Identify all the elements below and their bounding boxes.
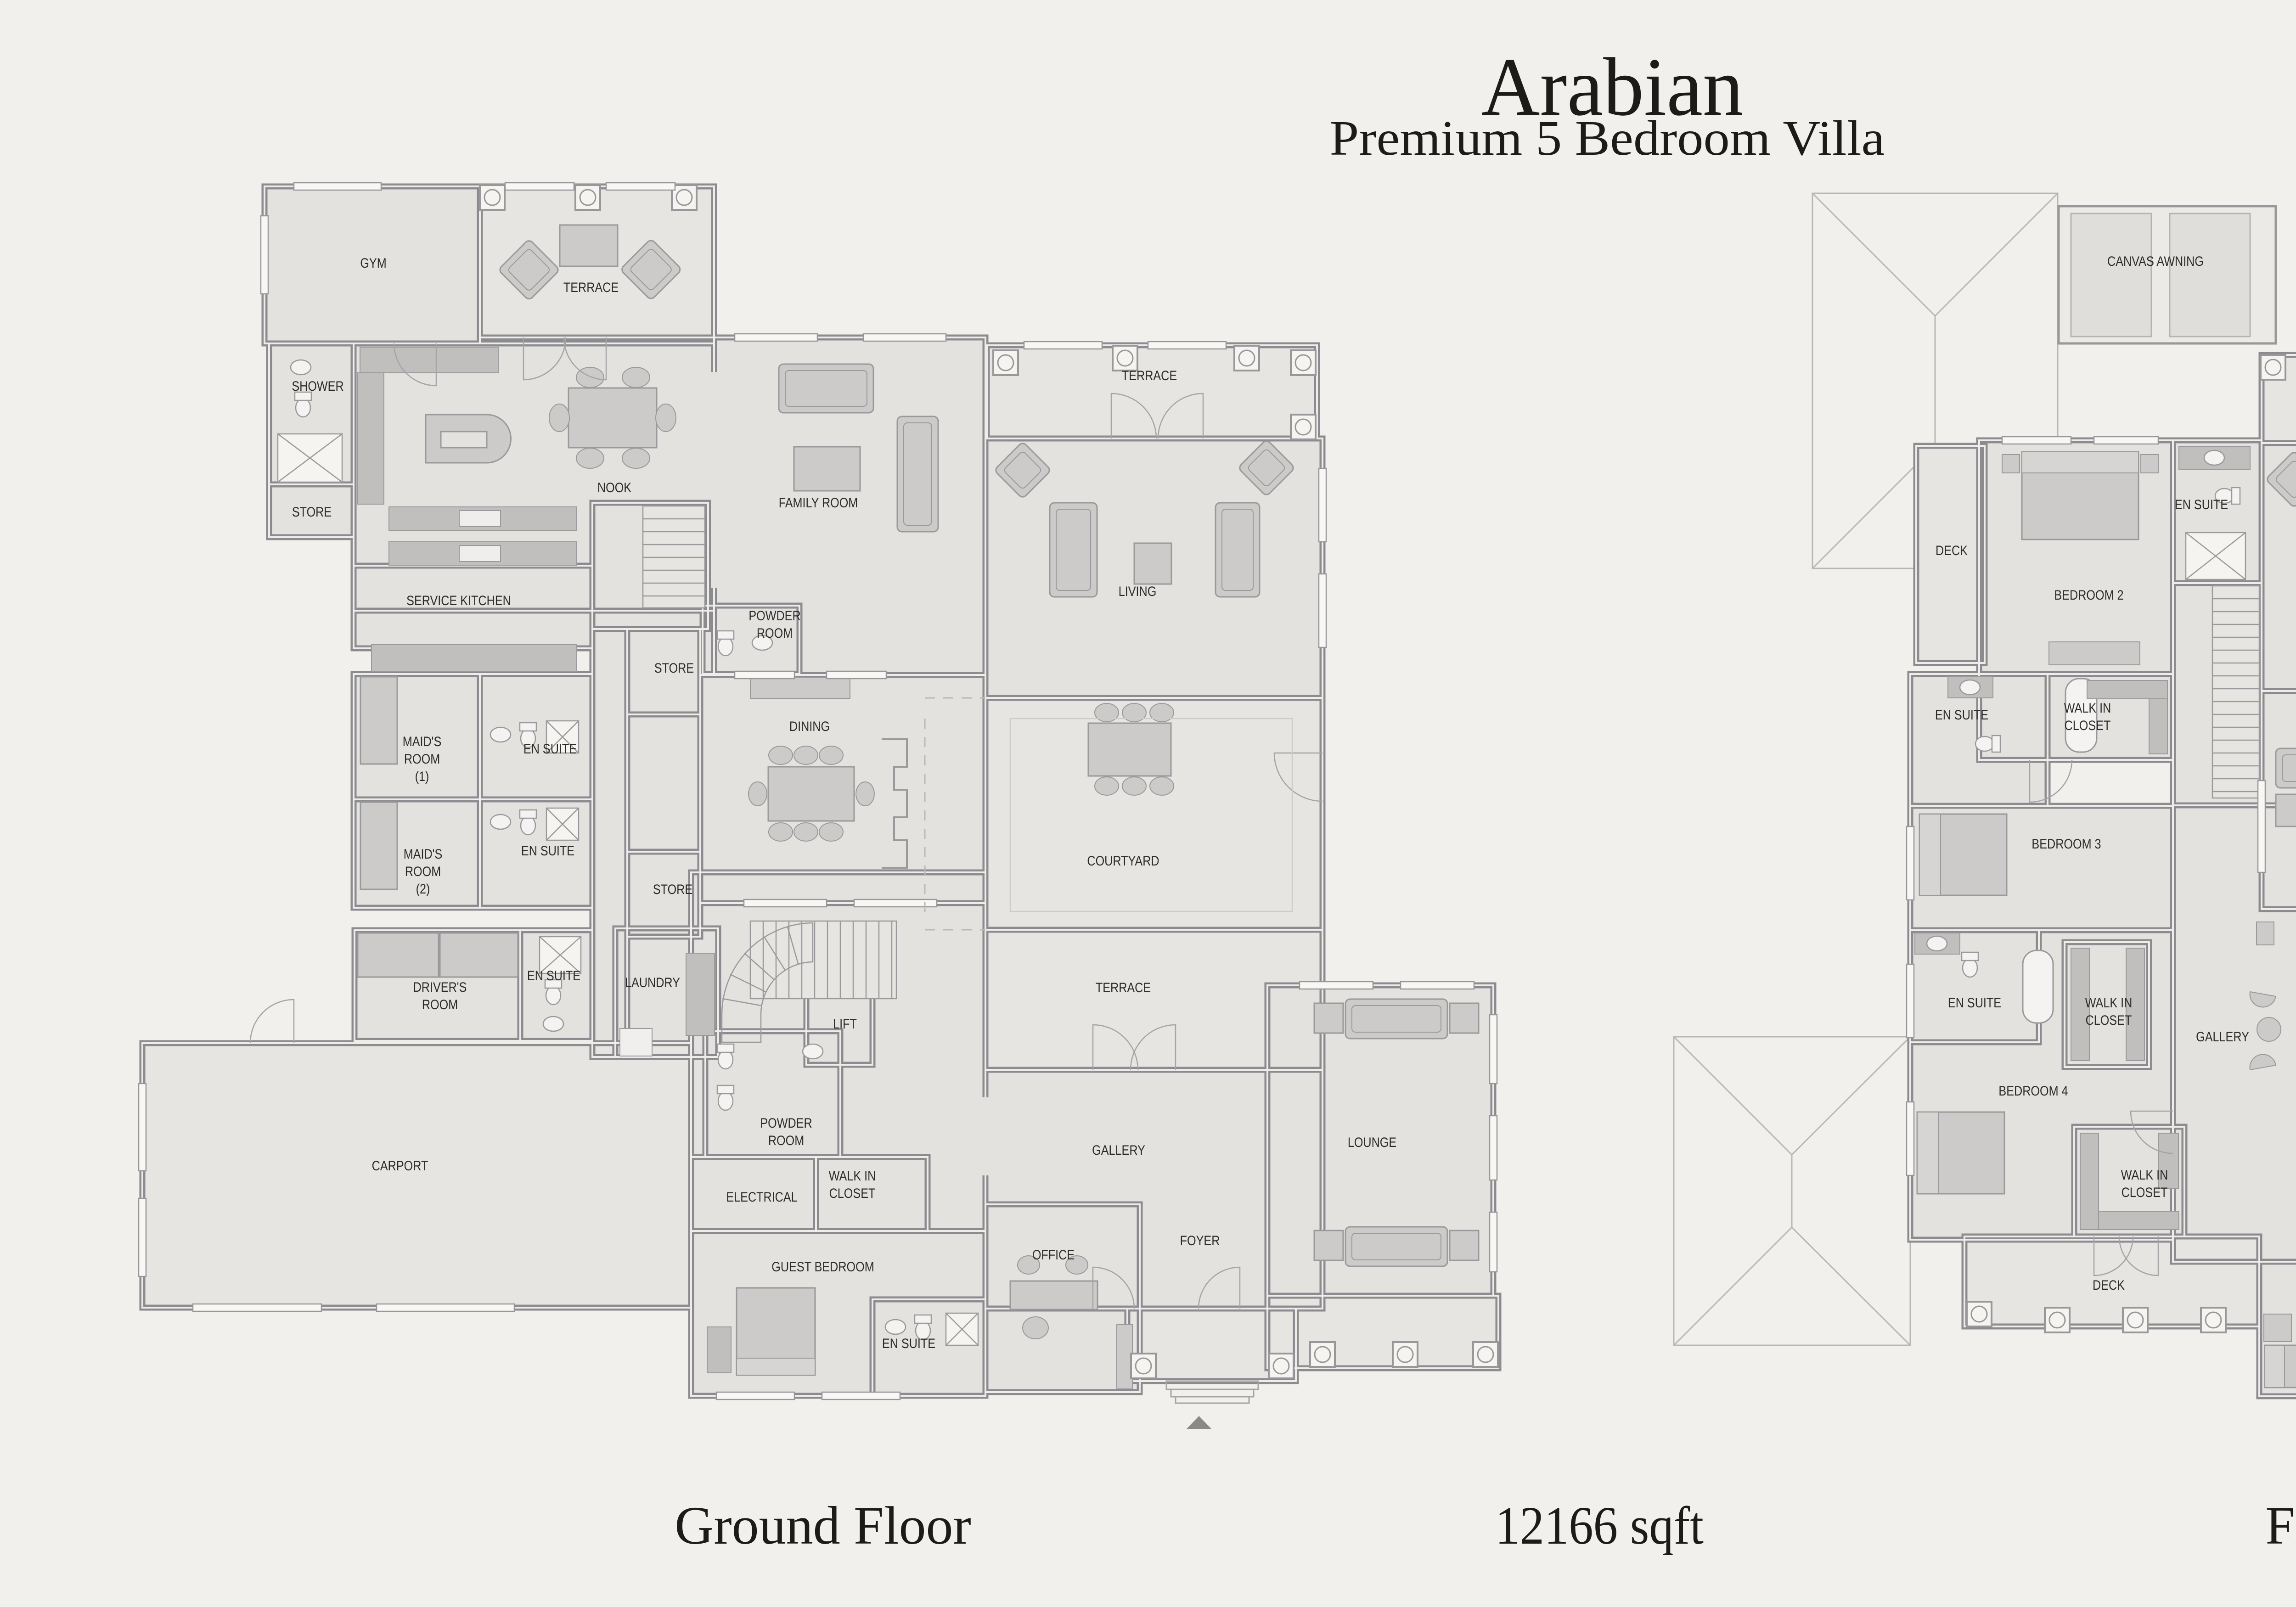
- svg-text:COURTYARD: COURTYARD: [1087, 853, 1159, 869]
- svg-text:ROOM: ROOM: [405, 864, 441, 879]
- svg-text:GALLERY: GALLERY: [2196, 1029, 2249, 1045]
- svg-text:MAID'S: MAID'S: [404, 846, 443, 862]
- svg-text:FOYER: FOYER: [1180, 1233, 1220, 1248]
- svg-text:EN SUITE: EN SUITE: [882, 1336, 935, 1351]
- svg-text:DECK: DECK: [2093, 1277, 2125, 1293]
- svg-text:12166 sqft: 12166 sqft: [1495, 1496, 1704, 1556]
- svg-text:Ground Floor: Ground Floor: [675, 1495, 971, 1556]
- svg-text:EN SUITE: EN SUITE: [521, 843, 574, 859]
- svg-text:TERRACE: TERRACE: [1096, 980, 1151, 995]
- svg-text:MAID'S: MAID'S: [403, 734, 442, 749]
- svg-text:WALK IN: WALK IN: [829, 1168, 876, 1184]
- svg-text:EN SUITE: EN SUITE: [1935, 707, 1988, 723]
- svg-text:EN SUITE: EN SUITE: [2175, 497, 2228, 512]
- svg-text:OFFICE: OFFICE: [1032, 1247, 1075, 1263]
- svg-text:FAMILY ROOM: FAMILY ROOM: [779, 495, 858, 511]
- svg-text:BEDROOM 2: BEDROOM 2: [2054, 587, 2123, 603]
- svg-text:EN SUITE: EN SUITE: [523, 741, 577, 757]
- svg-text:LOUNGE: LOUNGE: [1348, 1135, 1396, 1150]
- svg-text:CLOSET: CLOSET: [2065, 718, 2111, 733]
- svg-text:LAUNDRY: LAUNDRY: [625, 975, 680, 990]
- svg-text:CLOSET: CLOSET: [2122, 1185, 2168, 1200]
- svg-text:POWDER: POWDER: [760, 1115, 812, 1131]
- svg-text:GALLERY: GALLERY: [1092, 1142, 1145, 1158]
- svg-text:POWDER: POWDER: [748, 608, 800, 624]
- svg-text:WALK IN: WALK IN: [2121, 1167, 2168, 1183]
- svg-text:First Floor: First Floor: [2265, 1496, 2296, 1556]
- svg-text:TERRACE: TERRACE: [563, 280, 619, 295]
- svg-text:BEDROOM 3: BEDROOM 3: [2032, 836, 2101, 852]
- svg-text:WALK IN: WALK IN: [2064, 700, 2111, 716]
- svg-text:STORE: STORE: [653, 882, 692, 897]
- svg-text:CLOSET: CLOSET: [829, 1186, 876, 1201]
- svg-text:DRIVER'S: DRIVER'S: [413, 979, 467, 995]
- svg-text:EN SUITE: EN SUITE: [527, 968, 580, 983]
- svg-text:CARPORT: CARPORT: [372, 1158, 428, 1174]
- svg-text:ROOM: ROOM: [768, 1133, 804, 1148]
- svg-text:DINING: DINING: [789, 719, 830, 734]
- svg-text:STORE: STORE: [292, 504, 332, 520]
- svg-text:(2): (2): [416, 881, 430, 897]
- svg-text:SHOWER: SHOWER: [292, 378, 343, 394]
- svg-text:CANVAS AWNING: CANVAS AWNING: [2107, 253, 2204, 269]
- svg-text:(1): (1): [415, 769, 429, 784]
- svg-text:ELECTRICAL: ELECTRICAL: [726, 1189, 797, 1205]
- svg-text:ROOM: ROOM: [757, 625, 793, 641]
- svg-text:Premium 5 Bedroom Villa: Premium 5 Bedroom Villa: [1330, 111, 1885, 166]
- svg-text:EN SUITE: EN SUITE: [1948, 995, 2001, 1011]
- svg-text:STORE: STORE: [654, 660, 694, 676]
- svg-text:NOOK: NOOK: [597, 480, 632, 495]
- svg-text:DECK: DECK: [1936, 543, 1968, 558]
- svg-text:ROOM: ROOM: [422, 997, 458, 1012]
- svg-text:GYM: GYM: [360, 255, 386, 271]
- svg-text:GUEST BEDROOM: GUEST BEDROOM: [771, 1259, 874, 1275]
- svg-text:ROOM: ROOM: [404, 751, 440, 767]
- svg-text:TERRACE: TERRACE: [1122, 368, 1177, 383]
- svg-text:BEDROOM 4: BEDROOM 4: [1998, 1083, 2068, 1099]
- svg-text:CLOSET: CLOSET: [2086, 1012, 2132, 1028]
- svg-text:SERVICE KITCHEN: SERVICE KITCHEN: [406, 593, 511, 608]
- svg-text:LIFT: LIFT: [833, 1016, 857, 1032]
- svg-text:LIVING: LIVING: [1119, 584, 1157, 599]
- svg-text:WALK IN: WALK IN: [2085, 995, 2133, 1011]
